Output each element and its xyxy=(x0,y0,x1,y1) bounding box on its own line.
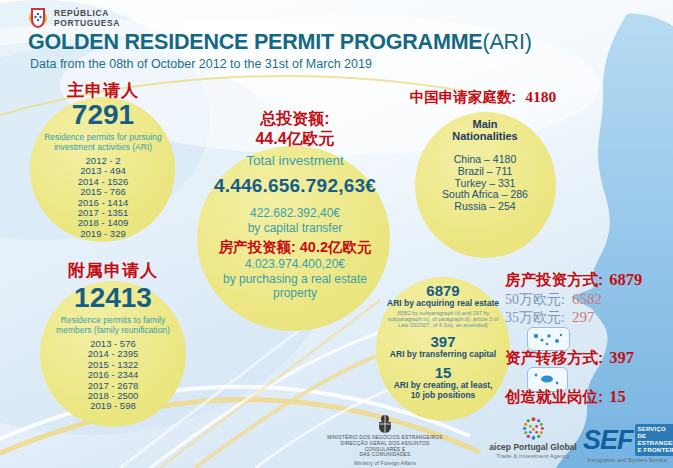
capital-transfer-amount: 422.682.392,40€ xyxy=(190,206,400,221)
ari-capital-label: ARI by transferring capital xyxy=(370,350,516,360)
sef-name-en: Immigration and Borders Service xyxy=(583,457,671,463)
year-row: 2019 - 598 xyxy=(28,401,198,411)
nationalities-content: Main Nationalities China – 4180Brazil – … xyxy=(405,118,565,213)
ministry-foreign-affairs-logo: MINISTÉRIO DOS NEGÓCIOS ESTRANGEIROSDIRE… xyxy=(325,414,445,466)
stat-capital-transfer-value: 397 xyxy=(609,348,634,367)
real-estate-amount: 4.023.974.400,20€ xyxy=(190,257,400,272)
investment-content: 总投资额: 44.4亿欧元 Total investment 4.446.656… xyxy=(190,109,400,300)
page-title: GOLDEN RESIDENCE PERMIT PROGRAMME(ARI) xyxy=(28,30,532,55)
sef-name-line: SERVIÇO xyxy=(638,426,673,433)
ari-real-estate-note: (6582 by subparagraph iii) and 297 by su… xyxy=(383,310,503,329)
nationality-row: Brazil – 711 xyxy=(405,166,565,178)
aicep-logo: aicep Portugal Global Trade & Investment… xyxy=(487,416,579,459)
nationality-row: Russia – 254 xyxy=(405,201,565,213)
ministry-name-line: MINISTÉRIO DOS NEGÓCIOS ESTRANGEIROS xyxy=(325,435,445,441)
stat-jobs-created: 创造就业岗位:15 xyxy=(505,387,673,408)
ministry-name-en: Ministry of Foreign Affairs xyxy=(325,460,445,466)
ari-breakdown-content: 6879 ARI by acquiring real estate (6582 … xyxy=(370,283,516,400)
stat-jobs-label: 创造就业岗位: xyxy=(505,388,603,405)
ministry-crest-icon xyxy=(376,414,394,434)
total-investment-value-zh: 44.4亿欧元 xyxy=(190,129,400,149)
stat-real-estate-method: 房产投资方式:6879 xyxy=(505,270,673,291)
ministry-name-line: DAS COMUNIDADES xyxy=(325,452,445,458)
portugal-coat-of-arms-icon xyxy=(28,5,48,31)
capital-transfer-label: by capital transfer xyxy=(190,221,400,236)
page-title-suffix: (ARI) xyxy=(483,30,532,54)
aicep-name: aicep Portugal Global xyxy=(487,442,579,452)
azores-islands-icon xyxy=(528,328,568,349)
gov-logo-line1: REPÚBLICA xyxy=(54,8,120,18)
family-members-heading-zh: 附属申请人 xyxy=(28,259,198,282)
stat-real-estate-value: 6879 xyxy=(609,270,642,289)
sef-name-lines: SERVIÇODE ESTRANGEIROSE FRONTEIRAS xyxy=(635,424,673,456)
real-estate-investment-zh: 房产投资额: 40.2亿欧元 xyxy=(190,238,400,257)
family-members-by-year: 2013 - 5762014 - 23952015 - 13222016 - 2… xyxy=(28,339,198,412)
family-members-content: 12413 Residence permits to family member… xyxy=(28,283,198,412)
stat-jobs-value: 15 xyxy=(609,387,626,406)
year-row: 2019 - 329 xyxy=(18,229,188,239)
total-investment-label-zh: 总投资额: xyxy=(190,109,400,129)
total-investment-amount: 4.446.656.792,63€ xyxy=(190,175,400,197)
sef-name-line: E FRONTEIRAS xyxy=(638,447,673,454)
stat-500k-tier: 50万欧元:6582 xyxy=(505,291,673,309)
sef-logo: SEF SERVIÇODE ESTRANGEIROSE FRONTEIRAS I… xyxy=(583,424,673,463)
sef-acronym: SEF xyxy=(583,427,633,454)
china-families-value: 4180 xyxy=(525,88,556,105)
main-applicants-by-year: 2012 - 22013 - 4942014 - 15262015 - 7662… xyxy=(18,156,188,239)
family-members-description: Residence permits to family members (fam… xyxy=(54,315,172,335)
main-applicants-description: Residence permits for pursuing investmen… xyxy=(27,132,179,152)
china-families-label: 中国申请家庭数: xyxy=(410,89,516,105)
page-subtitle: Data from the 08th of October 2012 to th… xyxy=(30,57,372,71)
main-applicants-content: 7291 Residence permits for pursuing inve… xyxy=(18,100,188,239)
stat-350k-value: 297 xyxy=(572,309,595,325)
aicep-globe-icon xyxy=(521,416,546,441)
ministry-name-lines: MINISTÉRIO DOS NEGÓCIOS ESTRANGEIROSDIRE… xyxy=(325,435,445,458)
ari-real-estate-label: ARI by acquiring real estate xyxy=(370,299,516,309)
sef-name-line: DE ESTRANGEIROS xyxy=(638,433,673,447)
family-members-total: 12413 xyxy=(28,283,198,313)
stat-500k-value: 6582 xyxy=(572,291,602,307)
ari-capital-value: 397 xyxy=(370,334,516,350)
nationalities-list: China – 4180Brazil – 711Turkey – 331Sout… xyxy=(405,154,565,213)
main-applicants-total: 7291 xyxy=(18,100,188,130)
ari-jobs-value: 15 xyxy=(370,365,516,381)
stat-capital-transfer-method: 资产转移方式:397 xyxy=(505,348,673,369)
gov-logo-line2: PORTUGUESA xyxy=(54,18,120,28)
infographic-slide: REPÚBLICA PORTUGUESA GOLDEN RESIDENCE PE… xyxy=(0,0,673,468)
stat-350k-tier: 35万欧元:297 xyxy=(505,309,673,327)
total-investment-label-en: Total investment xyxy=(190,152,400,170)
nationalities-title: Main Nationalities xyxy=(443,118,527,142)
stat-350k-label: 35万欧元: xyxy=(505,310,565,325)
ari-jobs-label: ARI by creating, at least, 10 job positi… xyxy=(391,381,495,400)
page-title-main: GOLDEN RESIDENCE PERMIT PROGRAMME xyxy=(28,30,483,54)
stat-500k-label: 50万欧元: xyxy=(505,292,565,307)
stat-capital-transfer-label: 资产转移方式: xyxy=(505,349,603,366)
aicep-tagline: Trade & Investment Agency xyxy=(487,453,579,459)
china-families-heading: 中国申请家庭数: 4180 xyxy=(399,88,567,107)
real-estate-label: by purchasing a real estate property xyxy=(213,272,378,300)
portugal-government-logo: REPÚBLICA PORTUGUESA xyxy=(28,5,120,31)
ari-real-estate-value: 6879 xyxy=(370,283,516,299)
stat-real-estate-label: 房产投资方式: xyxy=(505,271,603,288)
ministry-name-line: DIRECÇÃO GERAL DOS ASSUNTOS CONSULARES E xyxy=(325,441,445,453)
